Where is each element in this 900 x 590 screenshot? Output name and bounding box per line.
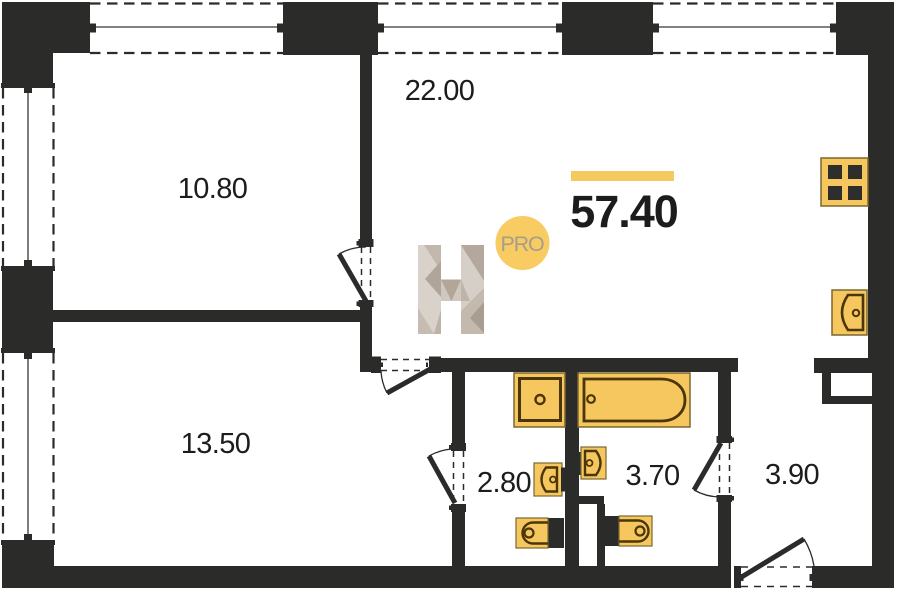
svg-text:PRO: PRO [501,232,544,256]
svg-text:13.50: 13.50 [181,428,251,460]
svg-text:2.80: 2.80 [477,467,531,499]
svg-text:3.90: 3.90 [765,459,819,491]
svg-text:3.70: 3.70 [625,460,679,492]
svg-text:57.40: 57.40 [570,186,678,237]
svg-text:10.80: 10.80 [178,173,248,205]
svg-text:22.00: 22.00 [405,75,475,107]
